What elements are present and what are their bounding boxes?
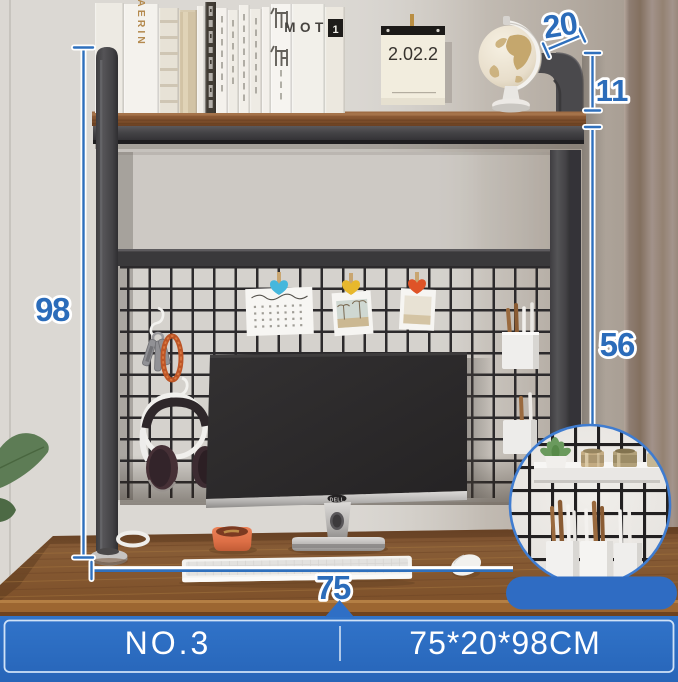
svg-text:1: 1: [332, 24, 338, 36]
svg-text:98: 98: [35, 291, 70, 328]
svg-text:2.02.2: 2.02.2: [388, 44, 438, 64]
svg-text:MOT: MOT: [284, 20, 328, 35]
svg-text:AERIN: AERIN: [135, 0, 147, 47]
svg-text:11: 11: [596, 73, 629, 108]
svg-text:75*20*98CM: 75*20*98CM: [409, 625, 600, 661]
svg-text:20: 20: [540, 5, 579, 46]
svg-text:75: 75: [316, 569, 351, 606]
svg-text:NO.3: NO.3: [125, 625, 212, 661]
svg-text:56: 56: [600, 326, 635, 363]
